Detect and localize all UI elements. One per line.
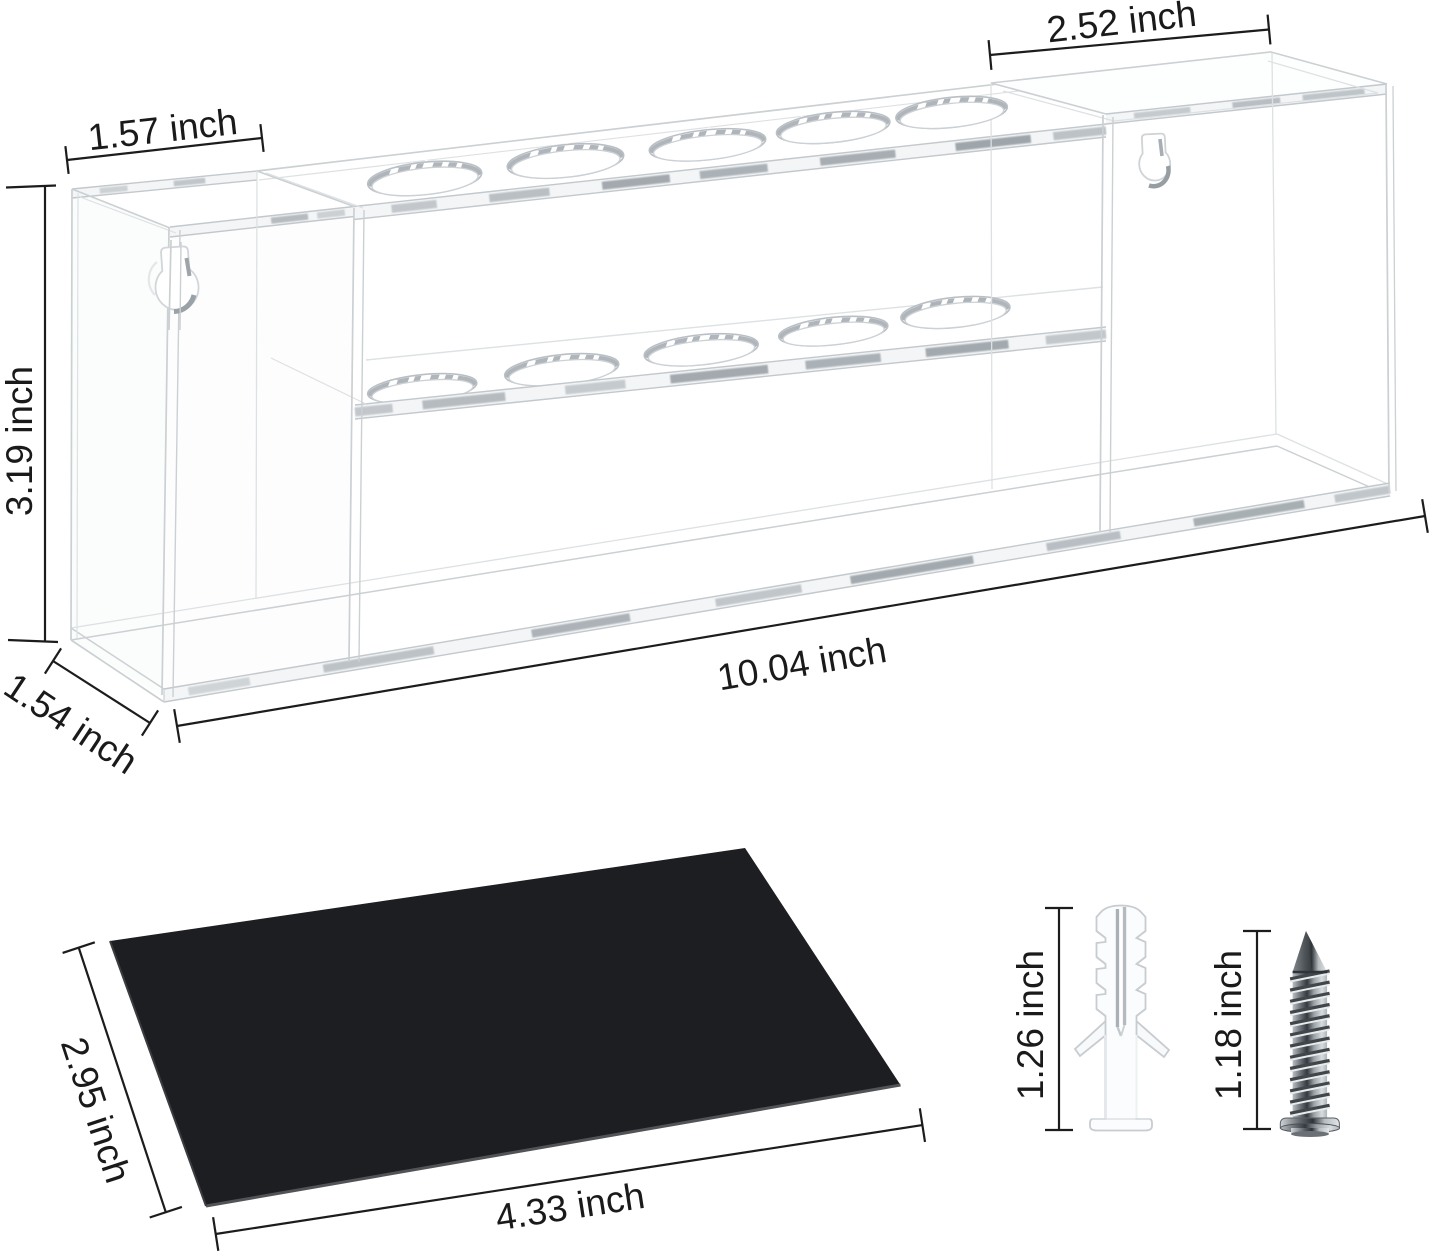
svg-text:1.18 inch: 1.18 inch: [1208, 950, 1249, 1100]
svg-text:1.26 inch: 1.26 inch: [1010, 950, 1051, 1100]
svg-text:3.19 inch: 3.19 inch: [0, 366, 40, 516]
